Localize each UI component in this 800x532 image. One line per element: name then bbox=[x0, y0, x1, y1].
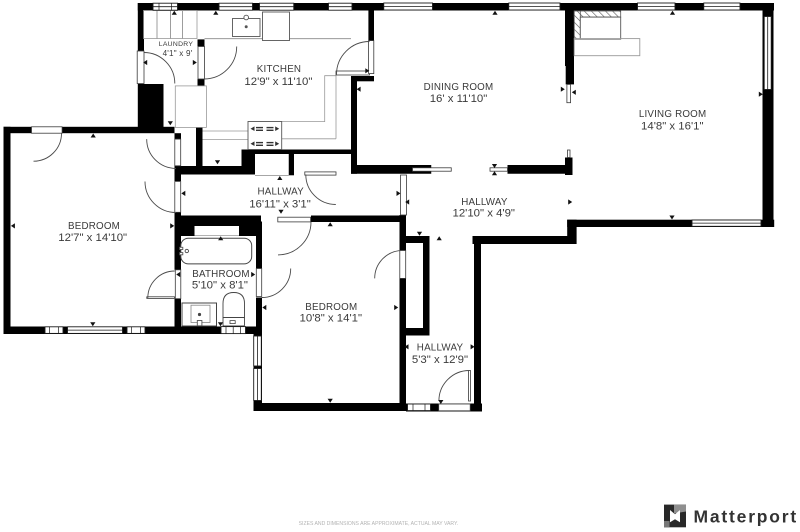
svg-text:DINING ROOM: DINING ROOM bbox=[424, 82, 494, 93]
svg-text:5'3" x 12'9": 5'3" x 12'9" bbox=[412, 354, 468, 366]
svg-text:5'10" x 8'1": 5'10" x 8'1" bbox=[192, 279, 248, 291]
svg-text:KITCHEN: KITCHEN bbox=[257, 64, 301, 75]
svg-text:LAUNDRY: LAUNDRY bbox=[159, 41, 194, 48]
svg-text:12'9" x 11'10": 12'9" x 11'10" bbox=[244, 76, 312, 88]
svg-text:LIVING ROOM: LIVING ROOM bbox=[639, 109, 707, 120]
svg-text:4'1" x 9': 4'1" x 9' bbox=[163, 49, 193, 58]
svg-text:10'8" x 14'1": 10'8" x 14'1" bbox=[300, 313, 362, 325]
svg-text:12'7" x 14'10": 12'7" x 14'10" bbox=[58, 232, 127, 244]
svg-text:Matterport: Matterport bbox=[694, 506, 799, 526]
svg-text:HALLWAY: HALLWAY bbox=[257, 187, 304, 198]
svg-text:HALLWAY: HALLWAY bbox=[461, 197, 508, 208]
svg-text:BEDROOM: BEDROOM bbox=[68, 221, 120, 232]
svg-text:14'8" x 16'1": 14'8" x 16'1" bbox=[641, 121, 703, 133]
svg-text:16'11" x 3'1": 16'11" x 3'1" bbox=[249, 198, 311, 210]
svg-text:SIZES AND DIMENSIONS ARE APPRO: SIZES AND DIMENSIONS ARE APPROXIMATE, AC… bbox=[299, 521, 458, 527]
svg-text:BEDROOM: BEDROOM bbox=[305, 302, 357, 313]
svg-text:12'10" x 4'9": 12'10" x 4'9" bbox=[453, 207, 515, 219]
svg-text:HALLWAY: HALLWAY bbox=[417, 343, 464, 354]
svg-text:16' x 11'10": 16' x 11'10" bbox=[430, 93, 488, 105]
